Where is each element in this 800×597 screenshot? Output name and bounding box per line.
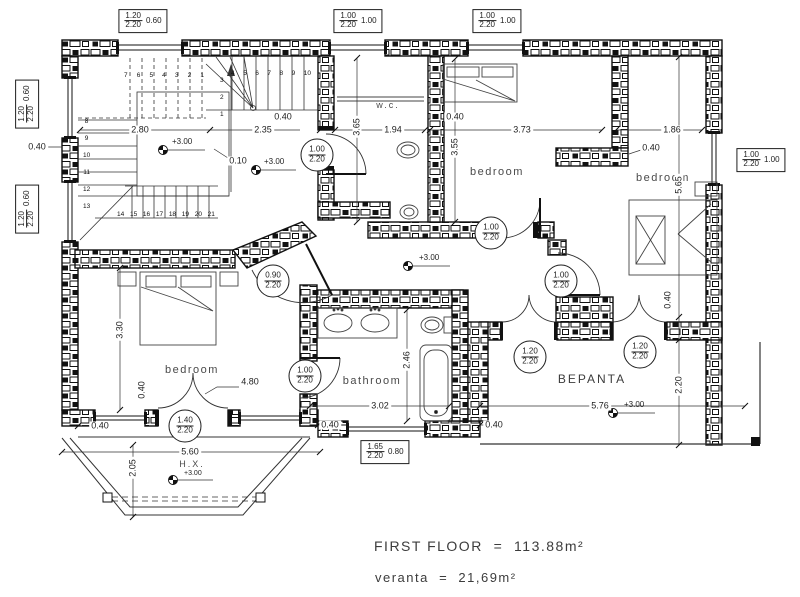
dimension-label: 3.02 xyxy=(369,402,391,411)
dimension-label: 0.40 xyxy=(640,144,662,153)
stair-number: 8 xyxy=(85,119,89,126)
stair-number: 7 xyxy=(267,71,271,78)
stair-number: 1 xyxy=(220,112,224,119)
stair-number: 18 xyxy=(169,212,176,219)
stair-number: 9 xyxy=(292,71,296,78)
dimension-label: 2.20 xyxy=(675,374,684,396)
stair-number: 8 xyxy=(280,71,284,78)
stair-number: 2 xyxy=(188,73,192,80)
door-tag: 0.902.20 xyxy=(257,265,290,298)
dimension-label: 1.94 xyxy=(382,126,404,135)
window-tag: 1.002.20 1.00 xyxy=(472,9,521,33)
room-label-veranda: ΒΕΡΑΝΤΑ xyxy=(558,372,626,386)
dimension-label: 2.46 xyxy=(403,349,412,371)
stair-number: 14 xyxy=(117,212,124,219)
floor-plan: w.c. bedroom bedroom bedroom bathroom ΒΕ… xyxy=(0,0,800,597)
dimension-label: 4.80 xyxy=(239,378,261,387)
room-label-wc: w.c. xyxy=(376,100,400,110)
dimension-label: 0.40 xyxy=(26,143,48,152)
stair-number: 12 xyxy=(83,187,90,194)
door-tag: 1.002.20 xyxy=(545,265,578,298)
stair-number: 3 xyxy=(175,73,179,80)
window-tag: 1.002.20 1.00 xyxy=(736,148,785,172)
stair-number: 2 xyxy=(220,95,224,102)
stair-number: 15 xyxy=(130,212,137,219)
room-label-bedroom-left: bedroom xyxy=(165,364,219,376)
stair-number: 1 xyxy=(200,73,204,80)
dimension-label: 0.10 xyxy=(227,157,249,166)
door-tag: 1.002.20 xyxy=(289,360,322,393)
legend-veranda-area: veranta = 21,69m² xyxy=(375,570,517,585)
window-tag: 1.202.20 0.60 xyxy=(15,79,39,128)
level-label: +3.00 xyxy=(624,401,644,409)
stair-number: 3 xyxy=(220,78,224,85)
stair-number: 7 xyxy=(124,73,128,80)
dimension-label: 5.65 xyxy=(675,174,684,196)
window-tag: 1.202.20 0.60 xyxy=(118,9,167,33)
stair-number: 4 xyxy=(162,73,166,80)
stair-number: 16 xyxy=(143,212,150,219)
dimension-label: 2.05 xyxy=(129,457,138,479)
dimension-label: 2.80 xyxy=(129,126,151,135)
stair-number: 20 xyxy=(195,212,202,219)
dimension-label: 3.30 xyxy=(116,319,125,341)
plan-geometry xyxy=(0,0,800,597)
dimension-label: 0.40 xyxy=(444,113,466,122)
dimension-label: 0.40 xyxy=(272,113,294,122)
stair-numbers-top-run: 45678910 xyxy=(231,71,311,78)
door-tag: 1.402.20 xyxy=(169,410,202,443)
stair-number: 17 xyxy=(156,212,163,219)
door-tag: 1.002.20 xyxy=(475,217,508,250)
window-tag: 1.002.20 1.00 xyxy=(333,9,382,33)
window-tag: 1.202.20 0.60 xyxy=(15,184,39,233)
dimension-label: 0.40 xyxy=(483,421,505,430)
dimension-label: 3.73 xyxy=(511,126,533,135)
stair-number: 4 xyxy=(231,71,235,78)
stair-numbers-bottom-run: 1415161718192021 xyxy=(117,212,215,219)
stair-number: 19 xyxy=(182,212,189,219)
level-label: +3.00 xyxy=(419,254,439,262)
stair-number: 10 xyxy=(304,71,311,78)
level-label: +3.00 xyxy=(264,158,284,166)
veranda-post xyxy=(751,437,760,446)
room-label-bedroom-center: bedroom xyxy=(470,166,524,178)
door-tag: 1.002.20 xyxy=(301,139,334,172)
dimension-label: 3.55 xyxy=(451,136,460,158)
stair-number: 9 xyxy=(85,136,89,143)
dimension-label: 3.65 xyxy=(353,116,362,138)
dimension-label: 5.76 xyxy=(589,402,611,411)
stair-numbers-winder: 321 xyxy=(220,78,224,118)
dimension-label: 0.40 xyxy=(319,421,341,430)
room-label-hx: H.X. xyxy=(179,459,205,469)
stair-numbers-upper-run: 7654321 xyxy=(124,73,204,80)
door-tag: 1.202.20 xyxy=(514,341,547,374)
room-label-bathroom: bathroom xyxy=(343,375,401,387)
dimension-label: 0.40 xyxy=(89,422,111,431)
stair-number: 5 xyxy=(149,73,153,80)
dimension-label: 2.35 xyxy=(252,126,274,135)
door-tag: 1.202.20 xyxy=(624,336,657,369)
dimension-label: 0.40 xyxy=(664,289,673,311)
level-label: +3.00 xyxy=(184,470,202,477)
door-swings xyxy=(158,134,667,408)
dimension-label: 5.60 xyxy=(179,448,201,457)
stair-numbers-left-run: 8910111213 xyxy=(83,119,90,211)
stair-number: 21 xyxy=(208,212,215,219)
stair-number: 6 xyxy=(137,73,141,80)
legend-first-floor-area: FIRST FLOOR = 113.88m² xyxy=(374,538,584,554)
dimension-label: 0.40 xyxy=(138,379,147,401)
stair-number: 6 xyxy=(255,71,259,78)
stair-number: 11 xyxy=(83,170,90,177)
stair-number: 5 xyxy=(243,71,247,78)
level-label: +3.00 xyxy=(172,138,192,146)
window-tag: 1.652.20 0.80 xyxy=(360,440,409,464)
stair-number: 13 xyxy=(83,204,90,211)
stair-number: 10 xyxy=(83,153,90,160)
dimension-label: 1.86 xyxy=(661,126,683,135)
